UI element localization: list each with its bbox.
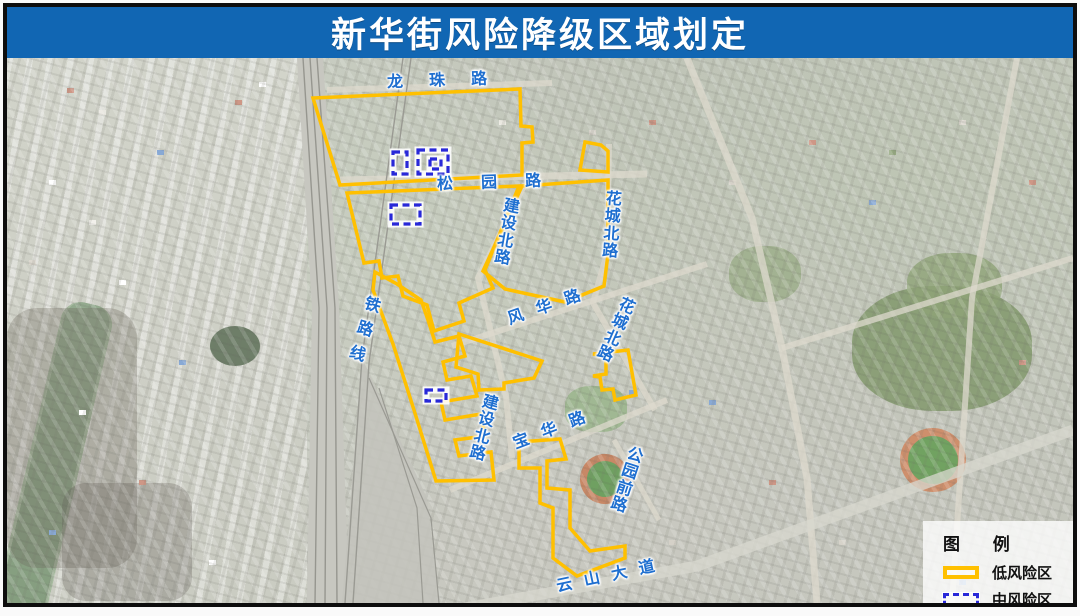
longzhu-road-label: 龙珠路 (387, 64, 514, 92)
slide: 新华街风险降级区域划定 (0, 0, 1080, 616)
slide-frame: 新华街风险降级区域划定 (3, 3, 1077, 607)
legend-row-medium-risk: 中风险区 (943, 589, 1063, 603)
legend-label-low-risk: 低风险区 (992, 562, 1052, 583)
legend-title: 图 例 (943, 530, 1063, 555)
medium-risk-swatch-icon (943, 593, 979, 603)
title-bar: 新华街风险降级区域划定 (7, 7, 1073, 58)
medium-risk-zone-halo (393, 152, 407, 174)
legend-label-medium-risk: 中风险区 (992, 589, 1052, 603)
legend-row-low-risk: 低风险区 (943, 562, 1063, 583)
satellite-map: 图 例 低风险区 中风险区 龙珠路松园路建设北路花城北路铁路线风华路花城北路建设… (7, 58, 1073, 603)
road-label-char: 花 (605, 191, 622, 209)
road-label-char: 路 (493, 248, 512, 268)
road-label-char: 城 (604, 208, 621, 226)
page-title: 新华街风险降级区域划定 (331, 7, 749, 58)
low-risk-region-northeast (580, 142, 608, 172)
road-label-char: 北 (603, 225, 620, 243)
medium-risk-zone-halo (391, 205, 420, 224)
road-label-char: 路 (602, 242, 619, 260)
medium-risk-zone-halo (426, 390, 446, 401)
songyuan-road-label: 松园路 (437, 166, 570, 195)
legend: 图 例 低风险区 中风险区 (923, 521, 1073, 603)
risk-region-overlay (7, 58, 1073, 603)
low-risk-swatch-icon (943, 566, 979, 579)
